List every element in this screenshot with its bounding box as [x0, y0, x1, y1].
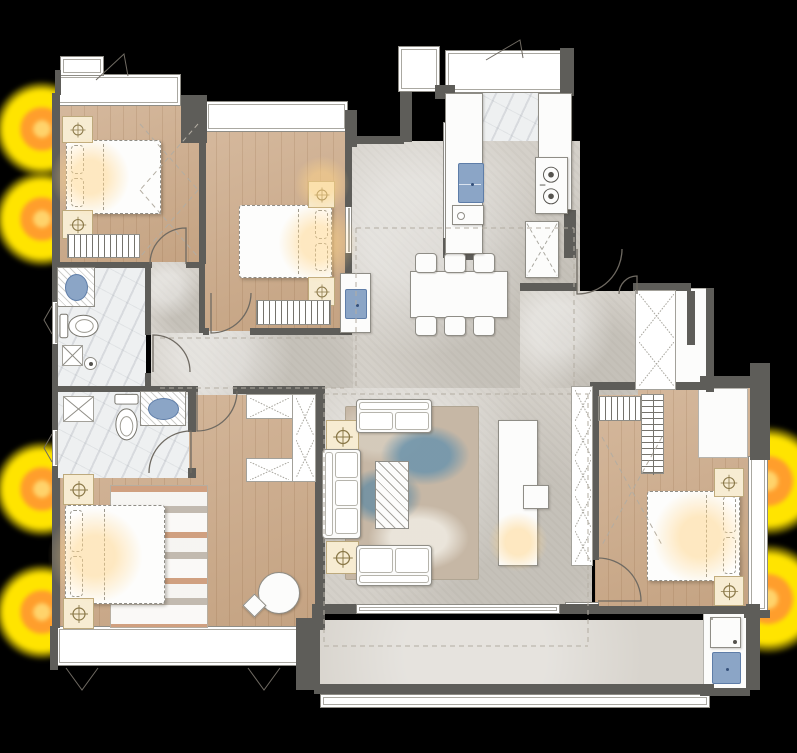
wall [50, 626, 58, 670]
living-storage-column [571, 386, 593, 566]
wall [233, 386, 317, 394]
bed2-light [278, 203, 358, 283]
sofa-two-seat-bottom [356, 545, 432, 586]
window-frame-line [323, 697, 707, 705]
laundry-sink [712, 652, 741, 684]
closet-cell [574, 459, 592, 492]
sofa-cushion [395, 548, 429, 573]
x-mark-icon [296, 440, 314, 478]
kitchen-top-counter-window [445, 50, 572, 93]
door-swing-arc [577, 249, 622, 294]
balcony-railing [320, 694, 710, 708]
bath1-toilet [59, 309, 102, 343]
sofa-cushion [335, 480, 358, 506]
washing-machine [710, 617, 741, 648]
wall [595, 606, 748, 614]
bed1-light [50, 137, 130, 217]
window-frame-line [401, 49, 437, 89]
wall [700, 688, 750, 696]
kitchen-appliance [452, 205, 484, 225]
x-mark-icon [575, 460, 591, 491]
casement-window-mark [66, 668, 98, 690]
basin-divider [459, 184, 481, 185]
bar-sink [345, 289, 367, 319]
window-frame-line [359, 607, 557, 611]
wall [560, 48, 574, 96]
closet-cell [249, 461, 290, 481]
sofa-two-seat-top [356, 399, 432, 433]
tv-light [488, 512, 548, 572]
floor-plan [0, 0, 797, 753]
dining-table [410, 271, 508, 318]
wall [318, 604, 356, 614]
window-box [60, 56, 104, 76]
sofa-cushion [335, 508, 358, 534]
fridge-icon [526, 222, 558, 277]
bed2-corner-light [294, 156, 350, 212]
bath2-window [52, 428, 58, 468]
wall [352, 136, 404, 144]
faucet-dot [471, 183, 474, 186]
closet-cell [638, 293, 675, 339]
sofa-cushion [359, 548, 393, 573]
side-table-lamp [326, 541, 359, 574]
stove [535, 157, 568, 214]
master-light [47, 508, 143, 604]
lamp-icon [330, 545, 356, 571]
dial [457, 212, 465, 220]
window-frame-line [448, 53, 569, 90]
lamp-icon [312, 282, 332, 302]
bedroom1-bay-window [55, 74, 181, 106]
nightstand-lamp [63, 474, 94, 505]
bed-end-bench [67, 234, 140, 258]
corridor-floor-2 [151, 262, 203, 333]
wall [687, 291, 695, 345]
dining-chair [444, 253, 466, 273]
closet-cell [295, 397, 315, 437]
sofa-back [359, 402, 429, 410]
toilet-icon [59, 309, 102, 343]
sofa-cushion [395, 412, 429, 430]
entry-shoe-cabinet [635, 290, 676, 390]
sofa-cushion [359, 412, 393, 430]
wardrobe-rail [653, 395, 654, 475]
washer-knob [733, 640, 737, 644]
dining-chair [415, 253, 437, 273]
closet-cell [574, 389, 592, 422]
closet-cell [638, 341, 675, 387]
closet-cell [295, 439, 315, 479]
bedroom3-bay-window [748, 456, 768, 612]
bath2-toilet [112, 393, 141, 448]
x-mark-icon [575, 425, 591, 456]
wall [186, 262, 203, 268]
wall [52, 344, 58, 392]
faucet-dot [726, 668, 729, 671]
wardrobe-bedroom3 [641, 394, 664, 474]
master-closet [246, 394, 293, 419]
bed-end-bench [256, 300, 331, 325]
bedroom3-closet-face [698, 388, 748, 458]
closet-cell [574, 424, 592, 457]
sofa-cushion [335, 452, 358, 478]
sofa-three-seat [322, 449, 361, 539]
x-mark-icon [250, 462, 289, 480]
dining-chair [415, 316, 437, 336]
fridge [525, 221, 559, 278]
wall [250, 328, 351, 335]
basin-sink [148, 398, 179, 420]
faucet-dot [356, 304, 359, 307]
wall [188, 468, 196, 478]
x-mark-icon [575, 531, 591, 562]
casement-window-mark [248, 668, 280, 690]
wall [145, 264, 151, 335]
bath1-vanity [57, 267, 95, 307]
wall [560, 604, 592, 614]
master-bay-window [56, 626, 302, 666]
ac-platform [398, 46, 440, 92]
balcony-floor [318, 620, 712, 690]
lamp-icon [67, 478, 91, 502]
bed-end-bench [598, 396, 641, 421]
bath1-shower-drain [62, 345, 83, 366]
window-frame-line [58, 77, 178, 103]
wall [312, 604, 320, 690]
dining-chair [473, 316, 495, 336]
wall [520, 283, 577, 291]
dining-chair [444, 316, 466, 336]
bath1-floor-drain [84, 357, 97, 370]
entry-hall-floor [520, 291, 638, 395]
window-frame-line [59, 629, 299, 663]
wall [203, 328, 209, 335]
window-frame-line [751, 459, 765, 609]
bedroom2-bay-window [205, 101, 348, 132]
dining-chair [473, 253, 495, 273]
wall [199, 141, 206, 264]
x-mark-icon [639, 342, 674, 386]
basin-sink [65, 274, 88, 301]
wall [750, 363, 770, 460]
lamp-icon [718, 580, 741, 603]
x-mark-icon [575, 496, 591, 527]
bath2-shower-drain [63, 396, 94, 422]
wall [314, 684, 714, 694]
wall [400, 92, 412, 142]
wall [199, 262, 205, 333]
wall [181, 95, 207, 143]
tv-stool [523, 485, 549, 509]
balcony-sliding-door [356, 604, 560, 614]
sofa-back [325, 452, 333, 536]
window-frame-line [63, 59, 101, 73]
closet-cell [574, 530, 592, 563]
casement-window-mark [44, 306, 52, 334]
master-closet-column [292, 394, 316, 482]
x-mark-icon [296, 398, 314, 436]
window-frame-line [55, 431, 57, 465]
x-mark-icon [639, 294, 674, 338]
wall [55, 70, 61, 95]
drain-icon [64, 397, 93, 421]
wall [188, 390, 196, 432]
bath2-vanity [140, 391, 186, 426]
drain-icon [63, 346, 82, 365]
wall [746, 604, 760, 690]
kitchen-sink [458, 163, 484, 203]
closet-cell [574, 495, 592, 528]
window-frame-line [208, 104, 345, 129]
x-mark-icon [575, 390, 591, 421]
stove-burners-icon [536, 158, 567, 213]
x-mark-icon [250, 398, 289, 417]
washer-door [711, 618, 713, 620]
wall [52, 390, 58, 430]
master-closet-2 [246, 458, 293, 482]
lamp-icon [718, 472, 740, 494]
sofa-back [359, 575, 429, 583]
window-frame-line [55, 303, 57, 343]
lamp-icon [330, 424, 356, 450]
bed3-light [652, 489, 748, 585]
toilet-icon [112, 393, 141, 448]
closet-cell [249, 397, 290, 418]
lamp-icon [67, 602, 91, 626]
wall [567, 210, 575, 250]
drain-hole [89, 362, 93, 366]
coffee-table [375, 461, 409, 529]
